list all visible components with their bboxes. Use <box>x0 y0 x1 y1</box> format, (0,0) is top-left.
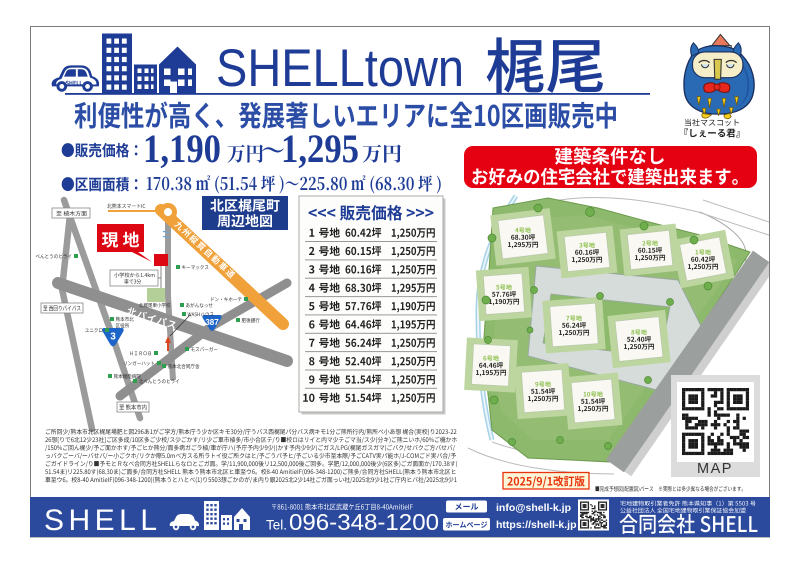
svg-text:https://shell-k.jp: https://shell-k.jp <box>496 519 577 531</box>
svg-text:MAP: MAP <box>697 461 733 477</box>
svg-text:info@shell-k.jp: info@shell-k.jp <box>496 502 571 514</box>
svg-text:1,190: 1,190 <box>143 126 221 171</box>
svg-text:387: 387 <box>205 318 219 327</box>
svg-text:3: 3 <box>110 332 116 343</box>
svg-text:SHELLtown: SHELLtown <box>216 39 464 98</box>
svg-text:1,295: 1,295 <box>281 126 359 171</box>
svg-text:Tel.: Tel. <box>266 518 287 533</box>
svg-text:096-348-1200: 096-348-1200 <box>289 509 439 535</box>
svg-text:SHELL: SHELL <box>44 504 162 537</box>
